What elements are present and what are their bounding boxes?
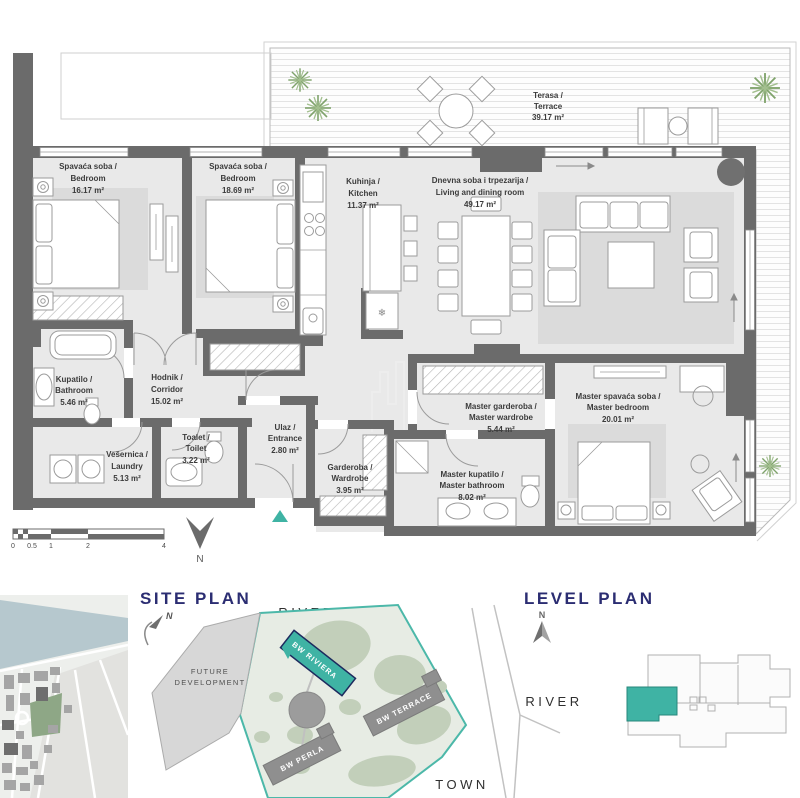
svg-text:FUTURE: FUTURE	[191, 667, 229, 676]
svg-text:Hodnik /: Hodnik /	[151, 373, 183, 382]
svg-text:Kitchen: Kitchen	[348, 189, 377, 198]
svg-text:Master kupatilo /: Master kupatilo /	[440, 470, 504, 479]
svg-text:Bathroom: Bathroom	[55, 386, 93, 395]
room-bathroom-label: Kupatilo /Bathroom5.46 m²	[55, 375, 93, 407]
svg-text:Master bedroom: Master bedroom	[587, 403, 649, 412]
scale-bar: 0 0.5 1 2 4	[11, 529, 166, 550]
svg-text:16.17 m²: 16.17 m²	[72, 186, 104, 195]
svg-text:20.01 m²: 20.01 m²	[602, 415, 634, 424]
svg-text:3.22 m²: 3.22 m²	[182, 456, 210, 465]
roof-outline	[61, 53, 271, 119]
svg-text:N: N	[166, 611, 173, 621]
svg-text:Living and dining room: Living and dining room	[436, 188, 524, 197]
svg-text:2: 2	[86, 543, 90, 550]
svg-text:Kuhinja /: Kuhinja /	[346, 177, 381, 186]
svg-text:Master bathroom: Master bathroom	[440, 481, 505, 490]
svg-text:Bedroom: Bedroom	[70, 174, 105, 183]
site-compass-icon: N	[145, 611, 173, 645]
room-terrace-label: Terasa /Terrace39.17 m²	[532, 91, 564, 122]
column	[717, 158, 745, 186]
level-plan-heading: LEVEL PLAN	[524, 589, 654, 608]
svg-text:N: N	[539, 610, 546, 620]
svg-text:Kupatilo /: Kupatilo /	[56, 375, 93, 384]
svg-text:3.95 m²: 3.95 m²	[336, 486, 364, 495]
svg-text:Terasa /: Terasa /	[533, 91, 563, 100]
site-plan-heading: SITE PLAN	[140, 589, 251, 608]
entrance-marker-icon	[272, 510, 288, 522]
svg-text:15.02 m²: 15.02 m²	[151, 397, 183, 406]
svg-text:Master spavaća soba /: Master spavaća soba /	[576, 392, 662, 401]
site-plan: SITE PLAN N RIVER BW RIVIERA	[140, 589, 560, 798]
room-toilet-label: Toalet /Toilet3.22 m²	[182, 433, 210, 465]
level-river-label: RIVER	[525, 694, 582, 709]
svg-text:Garderoba /: Garderoba /	[328, 463, 374, 472]
svg-text:5.46 m²: 5.46 m²	[60, 398, 88, 407]
svg-text:49.17 m²: 49.17 m²	[464, 200, 496, 209]
city-map-thumbnail	[0, 595, 128, 798]
future-development-area	[152, 613, 260, 770]
floor-plan: ❄	[0, 0, 800, 575]
level-compass-icon: N	[533, 610, 551, 643]
svg-text:Corridor: Corridor	[151, 385, 183, 394]
svg-text:Ulaz /: Ulaz /	[275, 423, 297, 432]
svg-text:DEVELOPMENT: DEVELOPMENT	[175, 678, 246, 687]
svg-text:5.44 m²: 5.44 m²	[487, 425, 515, 434]
svg-text:39.17 m²: 39.17 m²	[532, 113, 564, 122]
snowflake-icon: ❄	[378, 308, 386, 319]
svg-text:8.02 m²: 8.02 m²	[458, 493, 486, 502]
site-town-label: TOWN	[435, 777, 488, 792]
level-plan: LEVEL PLAN N RIVER	[524, 589, 790, 747]
svg-text:Master garderoba /: Master garderoba /	[465, 402, 537, 411]
svg-text:18.69 m²: 18.69 m²	[222, 186, 254, 195]
svg-text:Toilet: Toilet	[186, 444, 207, 453]
bedroom2-furniture	[206, 180, 295, 312]
svg-text:0.5: 0.5	[27, 543, 37, 550]
svg-text:Spavaća soba /: Spavaća soba /	[59, 162, 118, 171]
bottom-section: SITE PLAN N RIVER BW RIVIERA	[0, 575, 800, 798]
site-circle-plaza	[289, 692, 325, 728]
svg-text:Dnevna soba i trpezarija /: Dnevna soba i trpezarija /	[432, 176, 529, 185]
svg-text:Toalet /: Toalet /	[182, 433, 210, 442]
svg-text:Spavaća soba /: Spavaća soba /	[209, 162, 268, 171]
svg-text:0: 0	[11, 543, 15, 550]
level-plan-footprint	[627, 655, 790, 747]
svg-text:11.37 m²: 11.37 m²	[347, 201, 379, 210]
svg-text:Wardrobe: Wardrobe	[331, 474, 369, 483]
svg-text:Entrance: Entrance	[268, 434, 303, 443]
floor-plan-page: ❄	[0, 0, 800, 798]
svg-text:5.13 m²: 5.13 m²	[113, 474, 141, 483]
svg-text:Laundry: Laundry	[111, 462, 143, 471]
svg-text:N: N	[196, 554, 203, 565]
svg-text:4: 4	[162, 543, 166, 550]
svg-text:1: 1	[49, 543, 53, 550]
svg-text:Master wardrobe: Master wardrobe	[469, 413, 534, 422]
svg-text:Bedroom: Bedroom	[220, 174, 255, 183]
north-arrow-icon: N	[186, 517, 214, 565]
svg-text:2.80 m²: 2.80 m²	[271, 446, 299, 455]
svg-text:Vešernica /: Vešernica /	[106, 450, 149, 459]
room-corridor-label: Hodnik /Corridor15.02 m²	[151, 373, 184, 406]
room-kitchen-label: Kuhinja /Kitchen11.37 m²	[346, 177, 381, 210]
svg-text:Terrace: Terrace	[534, 102, 563, 111]
